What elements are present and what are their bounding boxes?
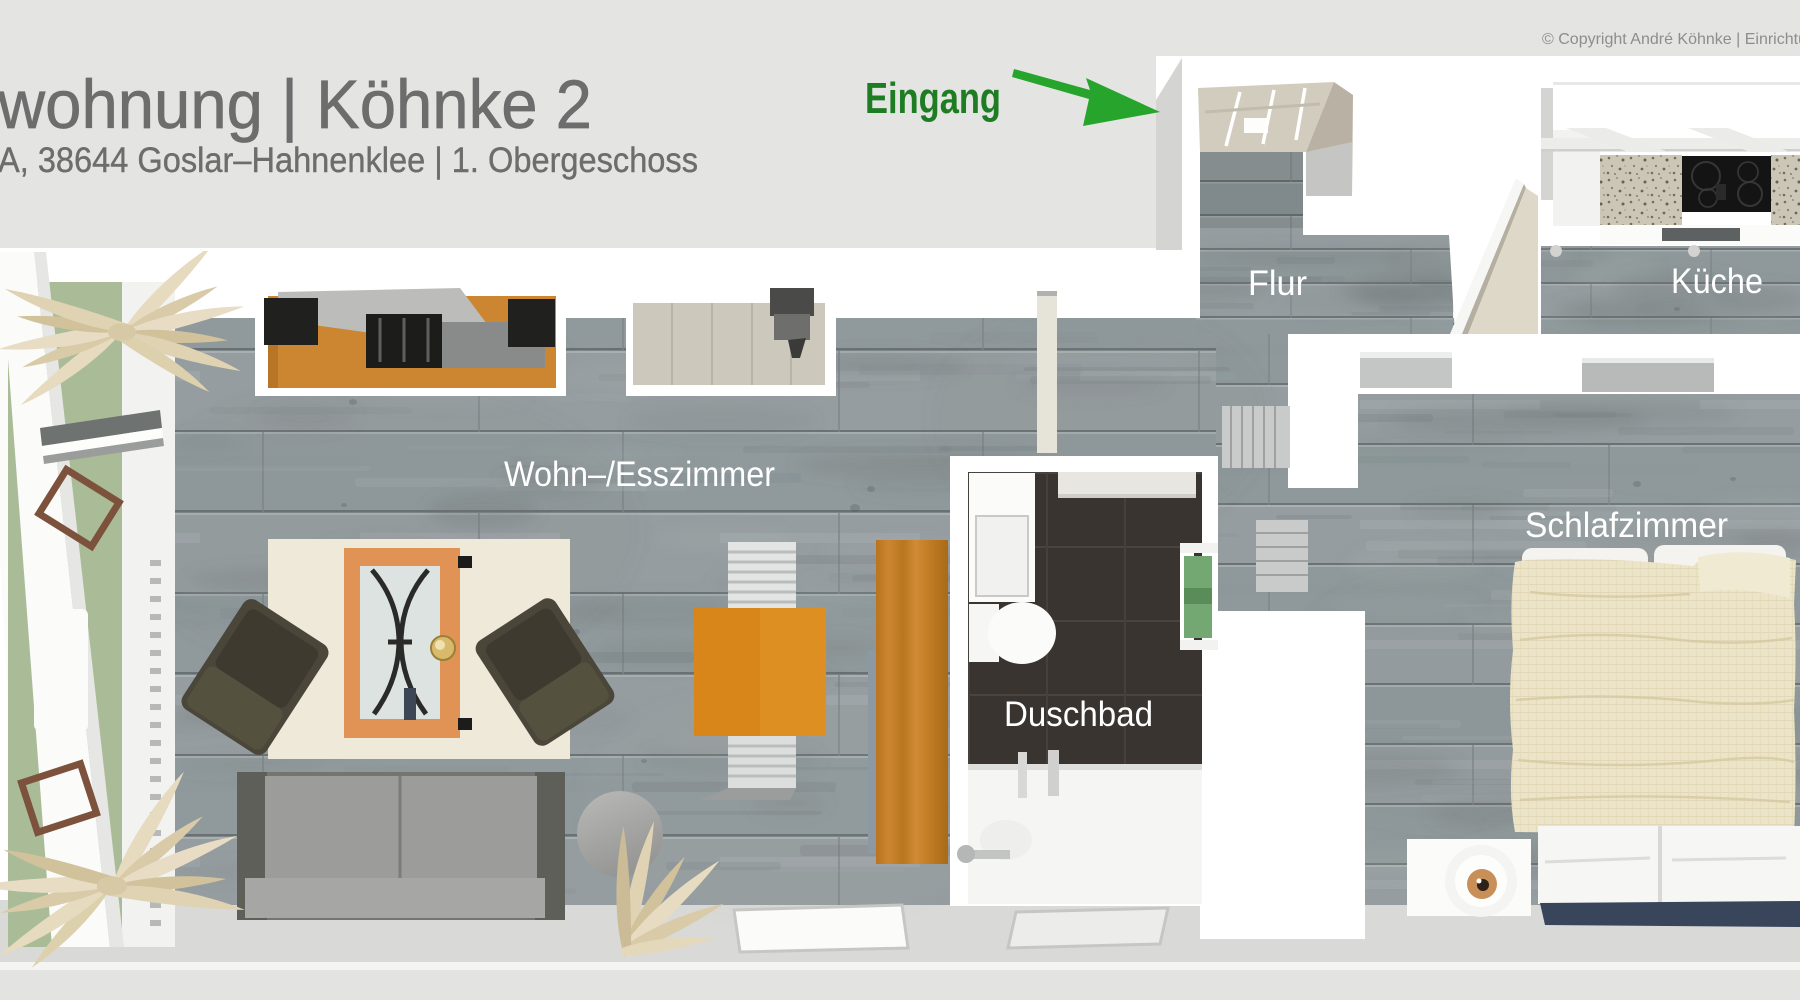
svg-text:Küche: Küche [1671,262,1763,301]
svg-text:wohnung | Köhnke 2: wohnung | Köhnke 2 [0,66,592,143]
svg-text:Duschbad: Duschbad [1004,695,1153,734]
svg-text:Eingang: Eingang [865,74,1001,123]
svg-text:Schlafzimmer: Schlafzimmer [1525,506,1728,545]
svg-text:Wohn–/Esszimmer: Wohn–/Esszimmer [504,455,775,494]
svg-text:© Copyright André Köhnke | Ein: © Copyright André Köhnke | Einrichtun [1542,31,1800,48]
svg-text:Flur: Flur [1248,264,1307,303]
svg-text:A, 38644 Goslar–Hahnenklee | 1: A, 38644 Goslar–Hahnenklee | 1. Obergesc… [0,141,698,180]
